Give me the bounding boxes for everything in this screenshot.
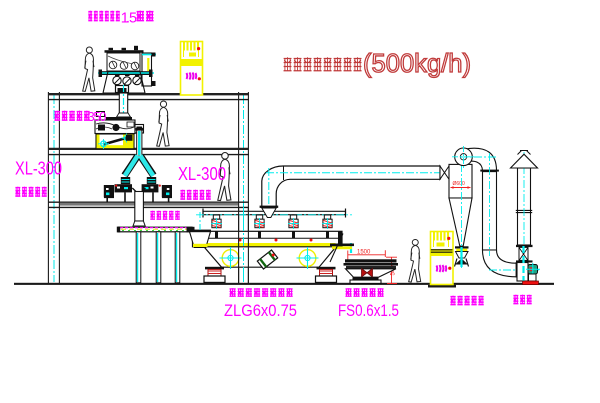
- svg-text:350: 350: [88, 109, 107, 124]
- svg-text:XL-300: XL-300: [178, 163, 226, 184]
- svg-text:FS0.6x1.5: FS0.6x1.5: [338, 301, 399, 320]
- svg-text:ZLG6x0.75: ZLG6x0.75: [224, 301, 297, 320]
- svg-text:(500kg/h): (500kg/h): [363, 48, 471, 78]
- svg-text:XL-300: XL-300: [15, 158, 62, 179]
- svg-text:1500: 1500: [357, 250, 371, 256]
- svg-text:Ø600: Ø600: [453, 181, 465, 187]
- svg-text:5: 5: [129, 11, 137, 27]
